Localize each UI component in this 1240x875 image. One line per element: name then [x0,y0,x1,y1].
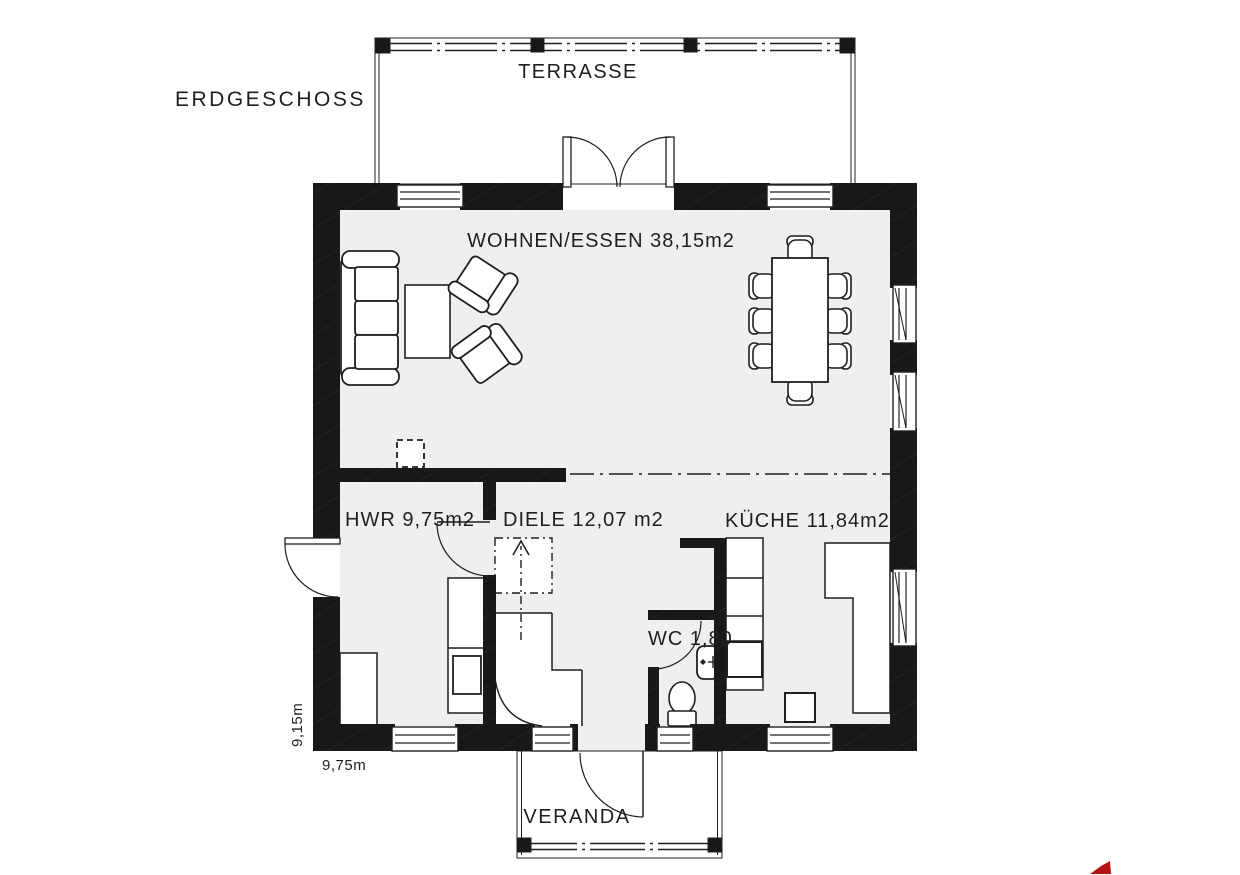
fireplace-dashed-box [397,440,424,467]
window [893,285,916,343]
floor-plan-title: ERDGESCHOSS [175,88,366,111]
kitchen-island [785,693,815,722]
room-label-utility: HWR 9,75m2 [345,509,475,531]
toilet [668,682,696,726]
side-entry-door [285,538,340,597]
dimension-label-width: 9,75m [322,757,366,774]
terrace-deck [375,38,855,184]
room-label-living: WOHNEN/ESSEN 38,15m2 [467,230,735,252]
floor-plan-drawing: ERDGESCHOSS TERRASSE WOHNEN/ESSEN 38,15m… [0,0,1240,875]
room-label-wc: WC 1,80 [648,628,733,650]
window [392,727,458,751]
window [893,372,916,431]
floor-plan-page: ERDGESCHOSS TERRASSE WOHNEN/ESSEN 38,15m… [0,0,1240,875]
window [893,569,916,646]
window [767,727,833,751]
logo-mark [1090,861,1111,874]
dimension-label-depth: 9,15m [289,703,306,747]
window [657,727,693,751]
window [532,727,573,751]
coffee-table [405,285,450,358]
terrace-label: TERRASSE [518,61,638,83]
room-label-kitchen: KÜCHE 11,84m2 [725,510,890,532]
washer [340,653,377,726]
dining-table [772,258,828,382]
room-label-hall: DIELE 12,07 m2 [503,509,664,531]
veranda-label: VERANDA [523,806,630,828]
veranda-deck [517,751,722,858]
window [397,185,463,207]
window [767,185,833,207]
sofa [341,251,399,385]
